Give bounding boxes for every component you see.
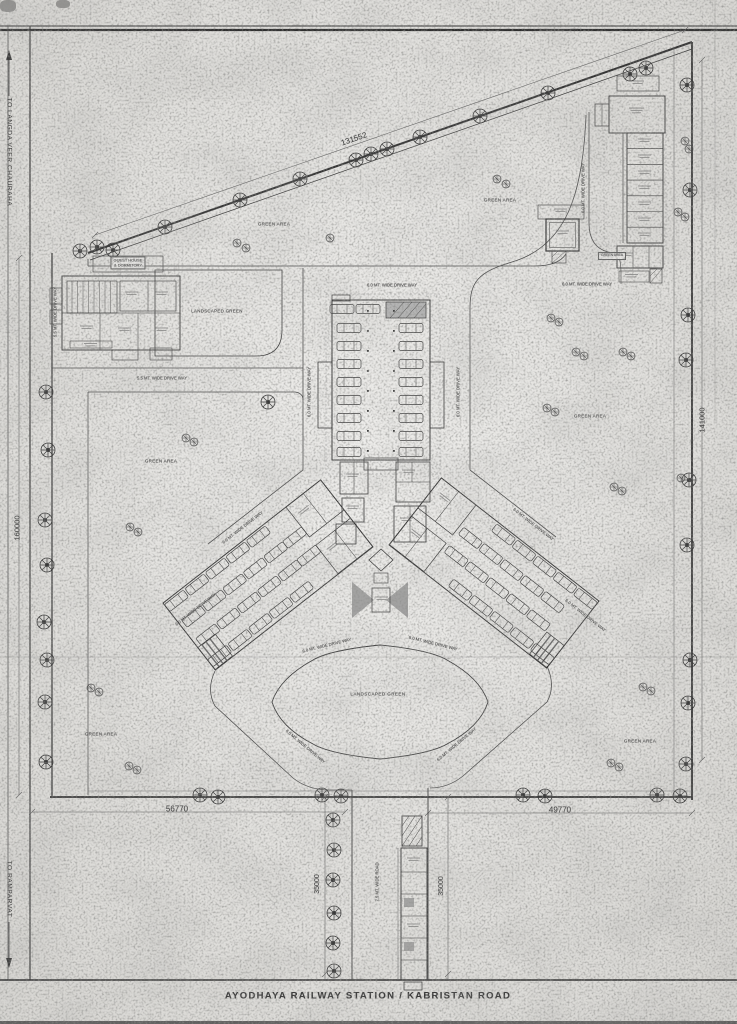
shrubs xyxy=(87,137,693,774)
site-boundary xyxy=(50,42,692,800)
driveway-label: 6.0 MT. WIDE DRIVE WAY xyxy=(367,284,417,289)
west-dimension-label: 160000 xyxy=(14,515,23,540)
north-dimension-label: 131552 xyxy=(340,130,368,147)
driveway-label: 6.0 MT. WIDE DRIVE WAY xyxy=(222,511,264,546)
access-road-dimension-left: 35000 xyxy=(314,874,322,893)
core-junction-block xyxy=(336,462,430,618)
south-west-dimension-label: 56770 xyxy=(166,804,188,813)
driveway-label: 6.0 MT. WIDE DRIVE WAY xyxy=(582,163,587,213)
driveway-label: 5.5 MT. WIDE DRIVE WAY xyxy=(54,287,59,337)
east-dimension-label: 141000 xyxy=(699,407,708,432)
access-road-label: 7.5 MT. WIDE ROAD xyxy=(376,862,381,901)
direction-arrow-down xyxy=(6,922,12,968)
boundary-trees xyxy=(37,61,697,978)
green-area-label: GREEN AREA xyxy=(484,197,516,202)
green-area-label: GREEN AREA xyxy=(624,738,656,743)
landscaped-green-label: LANDSCAPED GREEN xyxy=(350,691,405,696)
fold-crease-vertical xyxy=(714,0,716,420)
central-parking-building xyxy=(318,295,444,470)
paper-noise-overlay xyxy=(0,0,737,1024)
parked-cars xyxy=(429,509,597,665)
green-area-label: GREEN AREA xyxy=(145,458,177,463)
frame-lines xyxy=(0,26,737,980)
guest-house-label: GUEST HOUSE & DORMITORY xyxy=(110,256,145,269)
site-plan-linework xyxy=(0,0,737,1024)
driveway-label: 6.0 MT. WIDE DRIVE WAY xyxy=(562,283,612,288)
driveway-label: 6.0 MT. WIDE DRIVE WAY xyxy=(284,729,325,765)
road-name-left-bottom: TO RAMPARVAT xyxy=(5,861,12,918)
guest-house-building xyxy=(50,256,180,360)
access-road-strip-building xyxy=(401,816,427,990)
fold-crease-horizontal xyxy=(0,656,737,658)
driveway-label: 6.0 MT. WIDE DRIVE WAY xyxy=(408,636,458,653)
landscaped-green-label: LANDSCAPED GREEN xyxy=(191,308,242,313)
driveway-label: 6.0 MT. WIDE DRIVE WAY xyxy=(302,638,352,655)
south-east-dimension-label: 49770 xyxy=(549,805,571,814)
driveway-lines xyxy=(52,112,621,980)
green-area-label: GREEN AREA xyxy=(258,221,290,226)
driveway-label: 6.0 MT. WIDE DRIVE WAY xyxy=(512,508,554,543)
driveway-label: 6.0 MT. WIDE DRIVE WAY xyxy=(175,593,217,628)
access-road-dimension-right: 35000 xyxy=(438,876,446,895)
parked-cars xyxy=(330,305,423,457)
driveway-label: 6.0 MT. WIDE DRIVE WAY xyxy=(457,367,462,417)
direction-arrow-up xyxy=(6,50,12,96)
sub-station-building xyxy=(538,205,584,263)
driveway-label: 5.5 MT. WIDE DRIVE WAY xyxy=(137,377,187,382)
dimension-lines xyxy=(16,27,705,980)
parking-columns xyxy=(367,310,395,452)
driveway-label: 6.0 MT. WIDE DRIVE WAY xyxy=(436,727,477,763)
green-area-label: GREEN AREA xyxy=(574,413,606,418)
parked-cars xyxy=(164,509,336,667)
green-area-label: GREEN AREA xyxy=(85,731,117,736)
plan-title: AYODHAYA RAILWAY STATION / KABRISTAN ROA… xyxy=(225,992,511,1003)
driveway-label: 6.0 MT. WIDE DRIVE WAY xyxy=(564,599,606,634)
road-name-left-top: TO LANGDA VEER CHAURAHA xyxy=(5,98,12,207)
scan-blotch xyxy=(0,0,16,12)
driveway-label: 6.0 MT. WIDE DRIVE WAY xyxy=(308,367,313,417)
green-area-label: GREEN AREA xyxy=(598,252,626,260)
scan-blotch xyxy=(56,0,70,8)
site-plan-sheet: TO LANGDA VEER CHAURAHA TO RAMPARVAT 131… xyxy=(0,0,737,1024)
